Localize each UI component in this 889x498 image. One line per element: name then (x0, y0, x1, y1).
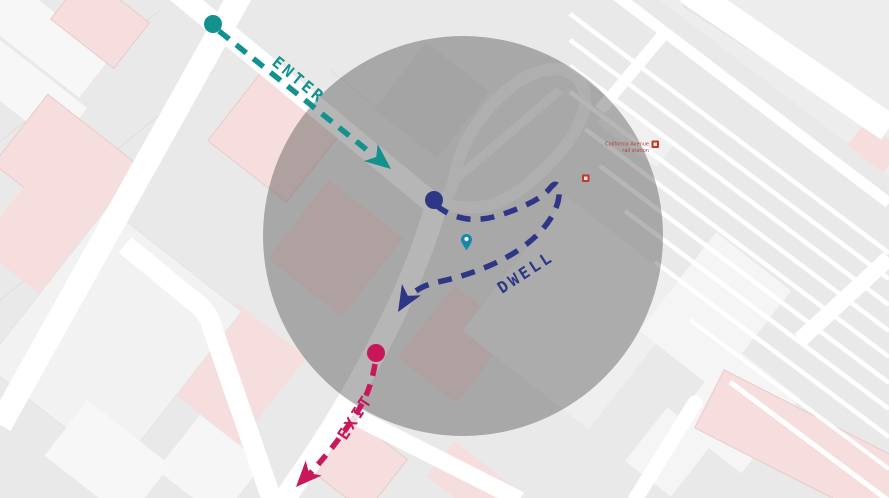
rail-station-icon-glyph (654, 143, 658, 147)
exit-start-dot (367, 344, 385, 362)
station-label-line2: rail station (622, 148, 649, 154)
dwell-start-dot (425, 191, 443, 209)
map-visualization: California Avenue rail station ENTER DWE… (0, 0, 889, 498)
map-canvas: California Avenue rail station ENTER DWE… (0, 0, 889, 498)
transit-stop-icon-glyph (584, 177, 588, 181)
pin-center-dot (464, 237, 468, 241)
station-label-line1: California Avenue (605, 142, 649, 148)
enter-start-dot (204, 15, 222, 33)
